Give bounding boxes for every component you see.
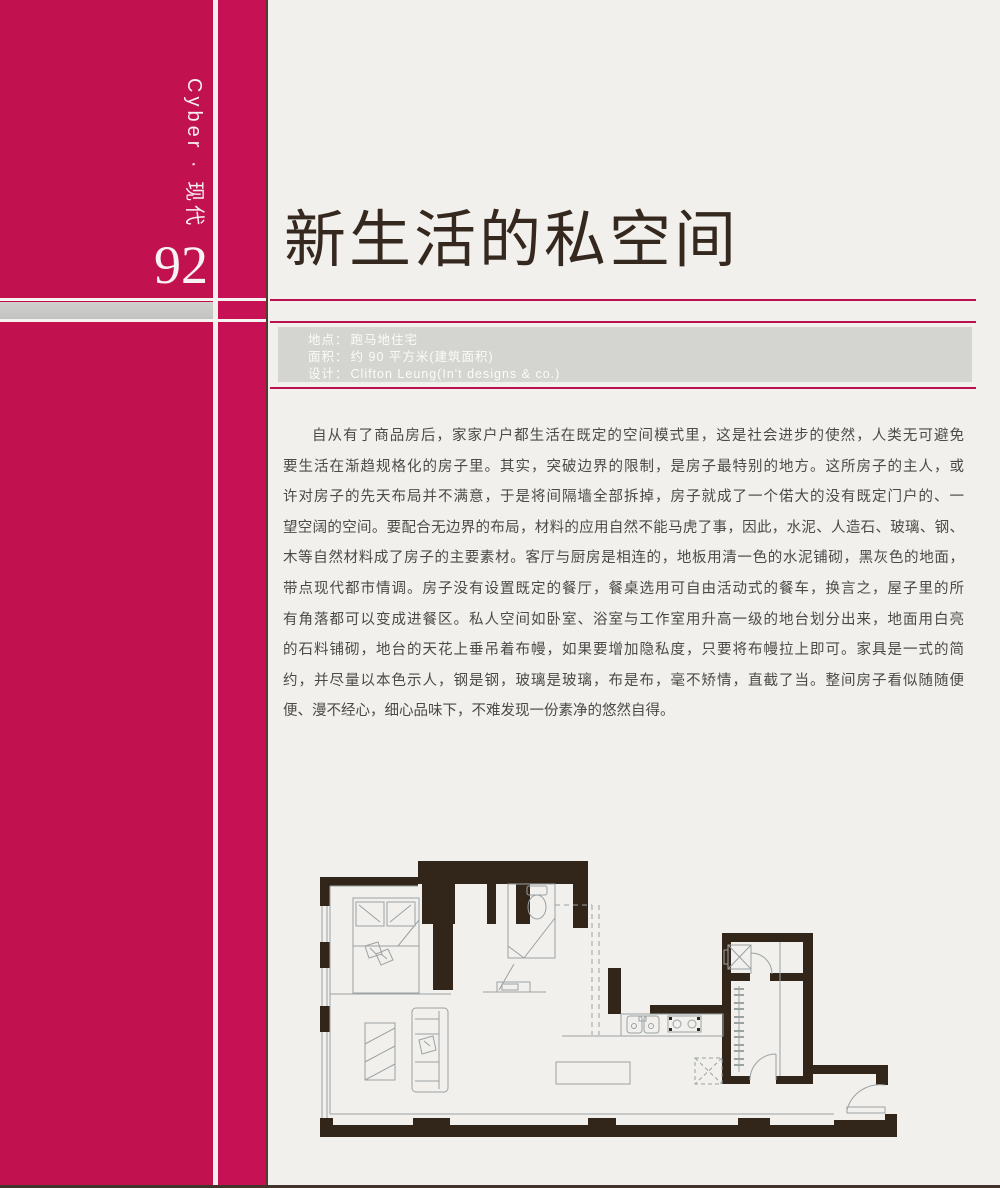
- category-vertical-label: Cyber · 现代: [182, 78, 211, 229]
- door-arc-bottom: [750, 1054, 776, 1080]
- vertical-divider-rule: [266, 0, 268, 1188]
- info-value: 约 90 平方米(建筑面积): [351, 350, 494, 364]
- accent-strip: [218, 0, 266, 1188]
- article-line: 许对房子的先天布局并不满意，于是将间隔墙全部拆掉，房子就成了一个偌大的没有既定门…: [283, 482, 964, 513]
- white-line-bottom: [0, 319, 266, 322]
- article-line: 望空阔的空间。要配合无边界的布局，材料的应用自然不能马虎了事，因此，水泥、人造石…: [283, 513, 964, 544]
- door-swing-arc: [847, 1085, 885, 1110]
- article-line: 自从有了商品房后，家家户户都生活在既定的空间模式里，这是社会进步的使然，人类无可…: [283, 421, 964, 452]
- book-page: Cyber · 现代 92 新生活的私空间 地点：跑马地住宅 面积：约 90 平…: [0, 0, 1000, 1188]
- article-line: 要生活在渐趋规格化的房子里。其实，突破边界的限制，是房子最特别的地方。这所房子的…: [283, 452, 964, 483]
- crimson-rule-2: [270, 321, 976, 323]
- info-label: 地点：: [308, 333, 349, 347]
- entry-door: [847, 1085, 885, 1113]
- article-line: 便、漫不经心，细心品味下，不难发现一份素净的悠然自得。: [283, 696, 964, 727]
- crimson-rule-1: [270, 299, 976, 301]
- article-line: 约，并尽量以本色示人，钢是钢，玻璃是玻璃，布是布，毫不矫情，直截了当。整间房子看…: [283, 666, 964, 697]
- sink-basin-1: [627, 1016, 642, 1033]
- left-accent-panel: Cyber · 现代 92: [0, 0, 213, 1188]
- gray-band: [0, 302, 213, 319]
- article-line: 的石料铺砌，地台的天花上垂吊着布幔，如果要增加隐私度，只要将布幔拉上即可。家具是…: [283, 635, 964, 666]
- sofa: [412, 1008, 448, 1092]
- info-value: 跑马地住宅: [351, 333, 419, 347]
- article-line: 木等自然材料成了房子的主要素材。客厅与厨房是相连的，地板用清一色的水泥铺砌，黑灰…: [283, 543, 964, 574]
- project-info-box: 地点：跑马地住宅 面积：约 90 平方米(建筑面积) 设计：Clifton Le…: [278, 327, 972, 382]
- living-room: [365, 982, 630, 1092]
- info-value: Clifton Leung(In't designs & co.): [351, 367, 561, 381]
- door-leaf: [847, 1107, 885, 1113]
- info-row: 设计：Clifton Leung(In't designs & co.): [308, 366, 972, 383]
- info-label: 设计：: [308, 367, 349, 381]
- floor-plan: [318, 858, 898, 1158]
- article-line: 有角落都可以变成进餐区。私人空间如卧室、浴室与工作室用升高一级的地台划分出来，地…: [283, 605, 964, 636]
- article-line: 带点现代都市情调。房子没有设置既定的餐厅，餐桌选用可自由活动式的餐车，换言之，屋…: [283, 574, 964, 605]
- curtain-fold: [508, 918, 555, 958]
- crimson-rule-3: [270, 387, 976, 389]
- bed: [353, 898, 419, 993]
- rug: [365, 1023, 395, 1080]
- article-body: 自从有了商品房后，家家户户都生活在既定的空间模式里，这是社会进步的使然，人类无可…: [283, 421, 964, 727]
- page-number: 92: [148, 234, 214, 296]
- article-title: 新生活的私空间: [284, 210, 739, 272]
- white-line-top: [0, 298, 266, 301]
- dining-table: [556, 1062, 630, 1084]
- info-row: 面积：约 90 平方米(建筑面积): [308, 349, 972, 366]
- info-label: 面积：: [308, 350, 349, 364]
- toilet-bowl: [528, 895, 546, 919]
- door-arc-top: [751, 953, 772, 974]
- info-row: 地点：跑马地住宅: [308, 332, 972, 349]
- stove-corners: [669, 1017, 700, 1031]
- floor-plan-drawing: [318, 858, 898, 1158]
